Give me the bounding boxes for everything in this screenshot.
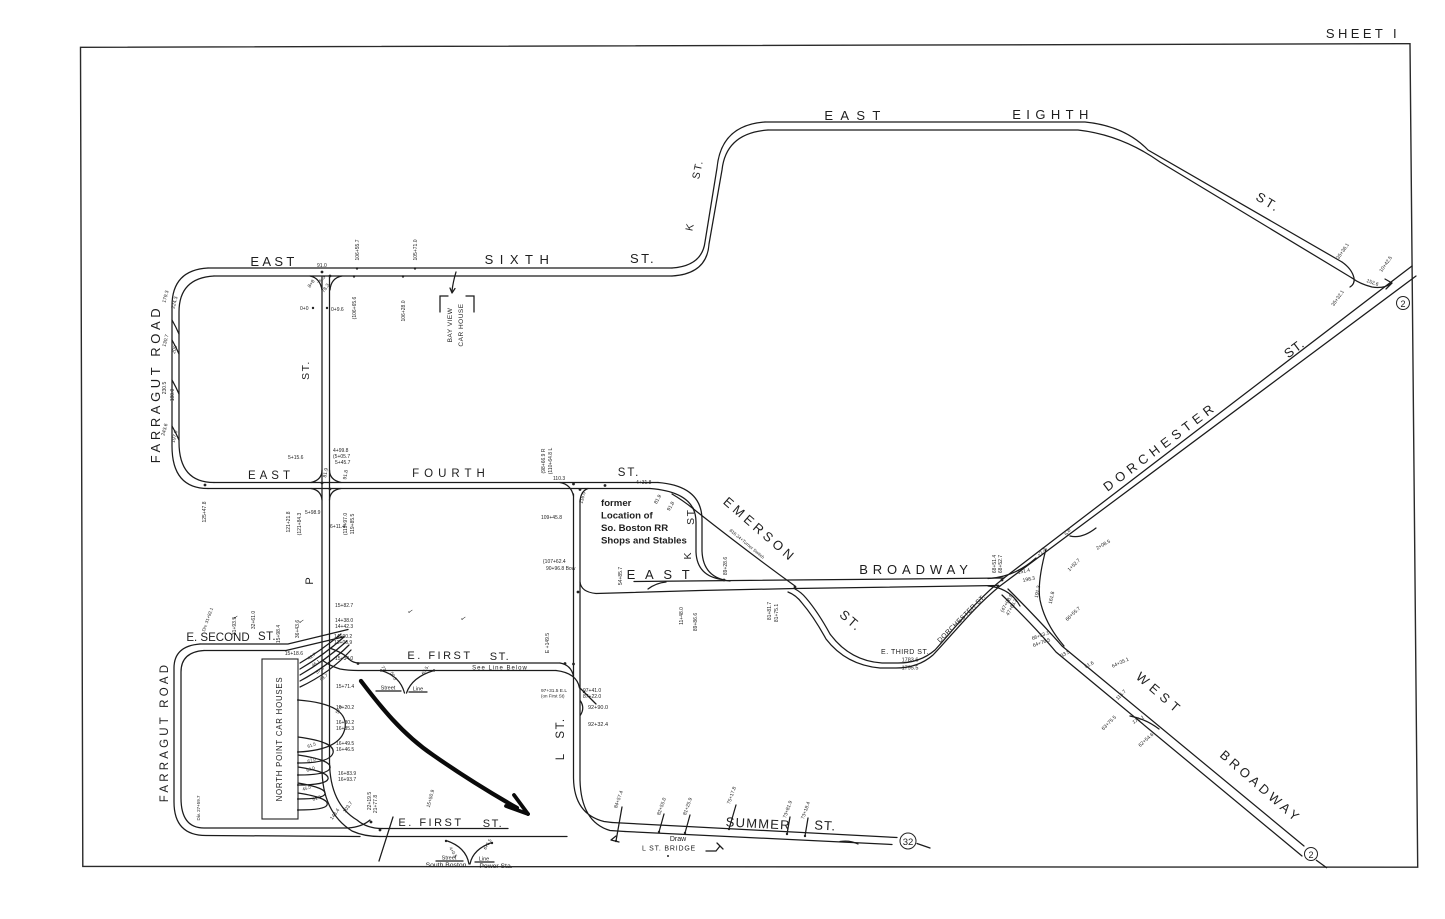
svg-text:EAST: EAST xyxy=(627,567,700,582)
svg-text:Shops and Stables: Shops and Stables xyxy=(601,536,687,547)
svg-text:16+93.7: 16+93.7 xyxy=(338,777,356,783)
svg-text:BAY VIEW: BAY VIEW xyxy=(447,307,454,342)
svg-text:54+85.7: 54+85.7 xyxy=(618,567,624,585)
svg-text:121+21.8: 121+21.8 xyxy=(286,511,292,532)
svg-text:ST.: ST. xyxy=(630,251,656,266)
svg-text:63.7: 63.7 xyxy=(319,672,329,681)
svg-text:91.8: 91.8 xyxy=(342,469,350,480)
svg-text:15+34.0: 15+34.0 xyxy=(335,656,353,662)
svg-text:1783.6: 1783.6 xyxy=(902,658,919,664)
svg-text:198.3: 198.3 xyxy=(1022,575,1036,584)
svg-text:125+47.8: 125+47.8 xyxy=(202,501,208,522)
svg-text:73+18.4: 73+18.4 xyxy=(800,801,812,820)
svg-text:0+0: 0+0 xyxy=(300,306,309,312)
svg-text:ST.: ST. xyxy=(1253,189,1283,215)
svg-text:2+08.5: 2+08.5 xyxy=(1095,539,1112,552)
svg-text:13+06.9: 13+06.9 xyxy=(334,640,352,646)
svg-text:✓: ✓ xyxy=(406,608,413,616)
svg-text:P: P xyxy=(304,577,316,584)
svg-text:91.8: 91.8 xyxy=(666,501,676,513)
svg-text:ST.: ST. xyxy=(300,360,312,380)
svg-text:11+48.0: 11+48.0 xyxy=(679,607,685,625)
svg-text:32: 32 xyxy=(903,837,914,848)
svg-text:82+55.0: 82+55.0 xyxy=(656,797,668,816)
svg-text:(119+97.0: (119+97.0 xyxy=(343,513,349,536)
svg-text:92+90.0: 92+90.0 xyxy=(588,705,608,711)
svg-text:Line: Line xyxy=(413,687,423,693)
svg-text:ST.: ST. xyxy=(685,505,697,525)
svg-text:106+55.7: 106+55.7 xyxy=(355,239,361,260)
svg-text:ST.: ST. xyxy=(814,817,837,833)
svg-text:Line: Line xyxy=(479,857,489,863)
svg-text:63+75.5: 63+75.5 xyxy=(1101,715,1118,732)
svg-text:L: L xyxy=(555,753,567,760)
svg-text:103.7: 103.7 xyxy=(342,800,354,814)
svg-text:87+22.0: 87+22.0 xyxy=(583,694,601,700)
svg-text:119+85.5: 119+85.5 xyxy=(350,513,356,534)
svg-text:E. SECOND: E. SECOND xyxy=(186,632,249,644)
svg-text:ST.: ST. xyxy=(483,818,503,830)
svg-text:SIXTH: SIXTH xyxy=(485,252,556,267)
svg-text:209: 209 xyxy=(171,345,179,355)
svg-text:South Boston: South Boston xyxy=(426,862,467,869)
svg-text:116.0: 116.0 xyxy=(579,491,588,504)
svg-text:E. THIRD ST.: E. THIRD ST. xyxy=(881,649,929,656)
svg-text:ST.: ST. xyxy=(555,717,567,738)
svg-text:191.3: 191.3 xyxy=(1034,585,1043,599)
svg-text:33.5: 33.5 xyxy=(1060,649,1072,659)
svg-text:former: former xyxy=(601,498,632,509)
svg-text:EAST: EAST xyxy=(248,470,294,482)
svg-text:(98+66.9 R: (98+66.9 R xyxy=(541,448,547,473)
svg-text:EAST: EAST xyxy=(824,108,887,123)
svg-text:SHEET I: SHEET I xyxy=(1326,26,1400,41)
svg-text:179.3: 179.3 xyxy=(162,290,171,304)
svg-text:32+61.0: 32+61.0 xyxy=(251,611,257,629)
svg-text:61.5: 61.5 xyxy=(307,741,317,749)
svg-text:105+71.0: 105+71.0 xyxy=(413,239,419,260)
svg-text:180.0: 180.0 xyxy=(170,389,176,402)
svg-text:81+81.7: 81+81.7 xyxy=(767,602,773,620)
svg-text:62.0: 62.0 xyxy=(306,765,316,773)
svg-text:64+35.1: 64+35.1 xyxy=(1111,656,1130,669)
svg-text:5+45.7: 5+45.7 xyxy=(335,460,351,466)
svg-text:15+50.9: 15+50.9 xyxy=(426,789,437,808)
svg-text:16+35.3: 16+35.3 xyxy=(336,726,354,732)
svg-text:EIGHTH: EIGHTH xyxy=(1012,107,1094,122)
svg-text:224.3: 224.3 xyxy=(171,296,180,310)
svg-text:Draw: Draw xyxy=(670,836,687,843)
svg-text:Power Sta.: Power Sta. xyxy=(479,863,512,870)
svg-text:92+32.4: 92+32.4 xyxy=(588,722,608,728)
svg-text:15+82.7: 15+82.7 xyxy=(335,603,353,609)
svg-text:2: 2 xyxy=(1308,850,1313,860)
svg-text:(106+65.6: (106+65.6 xyxy=(352,296,358,319)
svg-text:90+96.8 Bow: 90+96.8 Bow xyxy=(546,566,576,572)
svg-text:CAR HOUSE: CAR HOUSE xyxy=(458,303,465,346)
svg-text:35+36.1: 35+36.1 xyxy=(1335,242,1350,261)
svg-text:35+32.1: 35+32.1 xyxy=(1330,289,1345,308)
svg-text:See Line Below: See Line Below xyxy=(472,666,528,672)
svg-text:(121+84.3: (121+84.3 xyxy=(297,512,303,535)
svg-text:161.8: 161.8 xyxy=(1048,591,1057,605)
svg-text:So. Boston RR: So. Boston RR xyxy=(601,523,668,534)
svg-text:5+15.6: 5+15.6 xyxy=(288,455,304,461)
svg-text:110.3: 110.3 xyxy=(553,476,565,482)
svg-text:NORTH POINT CAR HOUSES: NORTH POINT CAR HOUSES xyxy=(275,677,284,802)
svg-text:ST.: ST. xyxy=(1281,336,1307,361)
svg-text:5.6: 5.6 xyxy=(1064,528,1073,537)
svg-text:0+9.6: 0+9.6 xyxy=(331,307,344,313)
svg-text:14+42.3: 14+42.3 xyxy=(335,624,353,630)
svg-text:89+28.6: 89+28.6 xyxy=(723,557,729,575)
svg-text:106+28.0: 106+28.0 xyxy=(401,300,407,321)
svg-text:Street: Street xyxy=(381,686,396,692)
svg-text:81.9: 81.9 xyxy=(322,467,330,478)
svg-text:21+77.8: 21+77.8 xyxy=(373,795,379,813)
svg-text:BROADWAY: BROADWAY xyxy=(1217,747,1305,826)
svg-text:✓: ✓ xyxy=(297,618,304,626)
svg-text:66+55.7: 66+55.7 xyxy=(1065,606,1083,623)
svg-text:ST.: ST. xyxy=(258,631,276,643)
svg-text:4+31.8: 4+31.8 xyxy=(636,480,652,486)
svg-text:ST.: ST. xyxy=(618,467,641,479)
svg-text:ST.: ST. xyxy=(837,607,866,635)
svg-text:✓: ✓ xyxy=(459,615,466,623)
svg-text:EAST: EAST xyxy=(250,254,297,269)
svg-text:6+5.5: 6+5.5 xyxy=(483,838,493,851)
svg-text:K: K xyxy=(683,223,696,232)
svg-text:DORCHESTER: DORCHESTER xyxy=(1100,399,1220,495)
svg-text:(on First St): (on First St) xyxy=(541,694,565,699)
svg-text:15+18.6: 15+18.6 xyxy=(285,651,303,657)
svg-text:ST.: ST. xyxy=(690,159,706,181)
svg-text:73+81.9: 73+81.9 xyxy=(782,800,794,819)
svg-text:E. FIRST: E. FIRST xyxy=(407,650,472,662)
svg-text:Div. 27+59.7: Div. 27+59.7 xyxy=(196,795,201,821)
svg-text:FARRAGUT ROAD: FARRAGUT ROAD xyxy=(159,662,171,802)
svg-text:75+17.8: 75+17.8 xyxy=(726,786,738,805)
svg-text:81+75.1: 81+75.1 xyxy=(774,604,780,622)
svg-text:2: 2 xyxy=(1400,299,1405,309)
svg-text:81.9: 81.9 xyxy=(653,494,663,506)
svg-text:15+71.4: 15+71.4 xyxy=(336,684,354,690)
svg-text:109+45.8: 109+45.8 xyxy=(541,515,562,521)
svg-text:61.0: 61.0 xyxy=(312,794,322,802)
svg-text:FOURTH: FOURTH xyxy=(412,468,490,480)
svg-text:FARRAGUT ROAD: FARRAGUT ROAD xyxy=(148,305,163,464)
svg-text:E. FIRST: E. FIRST xyxy=(398,817,463,829)
svg-text:(110+64.8 L: (110+64.8 L xyxy=(548,448,554,475)
svg-text:1+52.7: 1+52.7 xyxy=(1067,558,1082,573)
svg-text:ST.: ST. xyxy=(490,651,510,663)
svg-text:151.4: 151.4 xyxy=(1017,567,1031,576)
svg-text:81+25.9: 81+25.9 xyxy=(682,797,694,816)
svg-text:{107+62.4: {107+62.4 xyxy=(543,559,566,565)
svg-text:68+52.7: 68+52.7 xyxy=(998,555,1004,573)
svg-text:15+98.4: 15+98.4 xyxy=(276,625,282,643)
svg-text:230.5: 230.5 xyxy=(162,382,168,395)
svg-text:62+54.6: 62+54.6 xyxy=(1138,732,1156,749)
svg-text:Div. 31+92.1: Div. 31+92.1 xyxy=(201,606,214,632)
svg-text:89+86.6: 89+86.6 xyxy=(693,613,699,631)
svg-text:1795.5: 1795.5 xyxy=(902,666,919,672)
svg-text:K: K xyxy=(682,552,694,559)
svg-text:8+8: 8+8 xyxy=(307,279,317,290)
svg-text:5+98.9: 5+98.9 xyxy=(305,510,321,516)
svg-text:BROADWAY: BROADWAY xyxy=(859,562,973,577)
svg-text:10+42.5: 10+42.5 xyxy=(1378,255,1393,274)
svg-text:91.0: 91.0 xyxy=(317,263,327,269)
svg-text:84+57.4: 84+57.4 xyxy=(613,790,625,809)
svg-text:Location of: Location of xyxy=(601,511,653,522)
svg-text:16+46.5: 16+46.5 xyxy=(336,747,354,753)
svg-text:E +149.5: E +149.5 xyxy=(545,633,551,653)
svg-text:DORCHESTER ST.: DORCHESTER ST. xyxy=(937,594,988,645)
svg-text:L ST. BRIDGE: L ST. BRIDGE xyxy=(642,846,696,853)
